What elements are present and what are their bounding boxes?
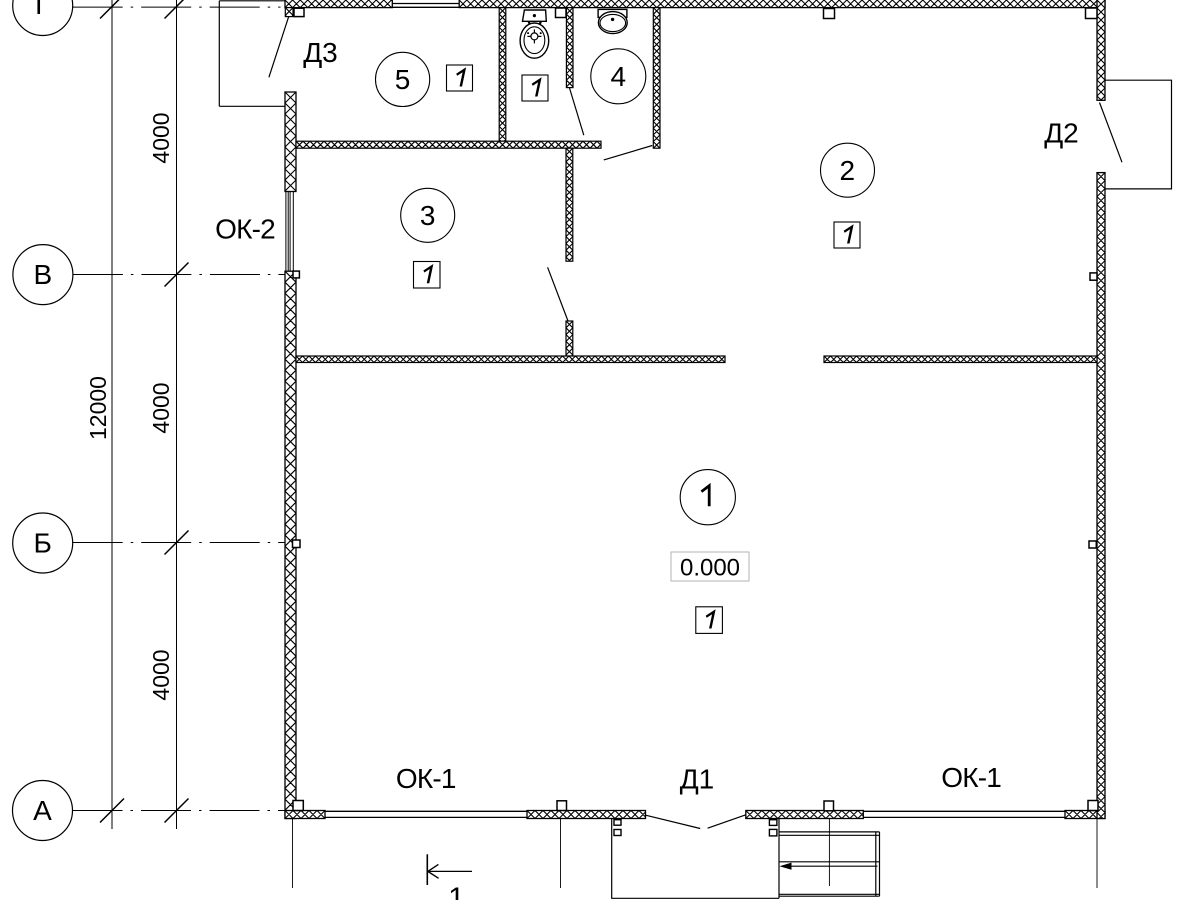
svg-text:Д1: Д1 (680, 763, 715, 794)
svg-text:Д3: Д3 (303, 37, 338, 68)
svg-text:А: А (33, 795, 52, 826)
svg-text:Б: Б (34, 528, 52, 559)
svg-text:5: 5 (395, 64, 411, 95)
svg-text:4000: 4000 (148, 112, 174, 163)
svg-text:3: 3 (420, 200, 436, 231)
svg-text:Г: Г (35, 0, 50, 20)
svg-text:2: 2 (840, 155, 856, 186)
svg-text:0.000: 0.000 (680, 555, 740, 582)
svg-text:ОК-2: ОК-2 (215, 214, 275, 245)
svg-text:ОК-1: ОК-1 (941, 762, 1001, 793)
svg-text:4000: 4000 (148, 649, 174, 700)
svg-text:4000: 4000 (148, 382, 174, 433)
svg-text:В: В (34, 259, 53, 290)
svg-text:12000: 12000 (85, 376, 111, 440)
svg-text:ОК-1: ОК-1 (396, 763, 456, 794)
svg-text:4: 4 (611, 61, 627, 92)
svg-text:1: 1 (448, 882, 465, 900)
svg-text:Д2: Д2 (1044, 118, 1079, 149)
